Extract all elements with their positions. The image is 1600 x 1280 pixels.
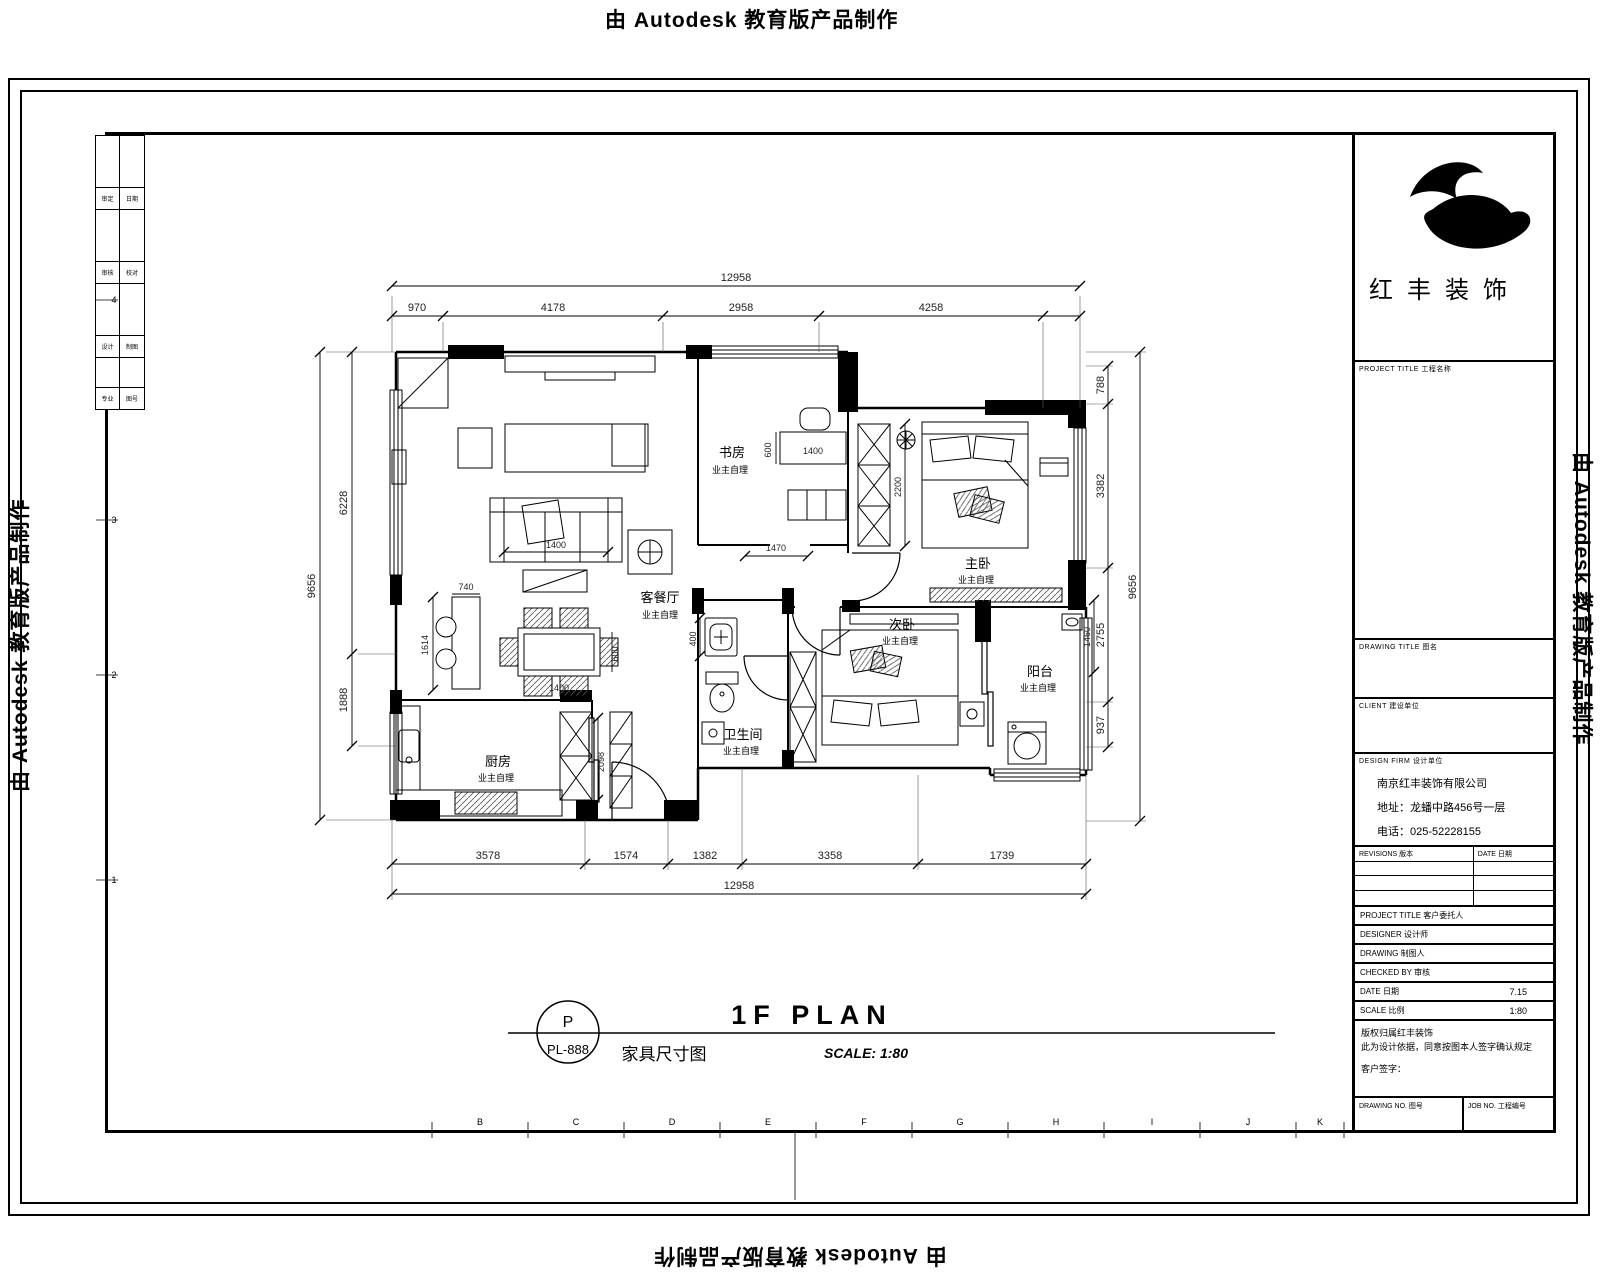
dim: 1460 <box>1082 627 1092 647</box>
dim-kitchen: 2098 <box>596 752 606 772</box>
drawing-stamp: P PL-888 1F PLAN 家具尺寸图 SCALE: 1:80 <box>508 1000 1275 1064</box>
room-note-balcony: 业主自理 <box>1020 682 1056 693</box>
dim: 1888 <box>338 688 350 712</box>
dim-bottom-total: 12958 <box>724 880 755 892</box>
stool <box>1040 458 1068 476</box>
dim-desk: 1400 <box>803 446 823 456</box>
grid-number: 3 <box>111 515 116 525</box>
dim: 1739 <box>990 850 1014 862</box>
grid-references: B C D E F G H I J K 4 3 2 1 <box>96 295 1344 1200</box>
dim: 1574 <box>614 850 638 862</box>
grid-number: 4 <box>111 295 116 305</box>
room-note-study: 业主自理 <box>712 464 748 475</box>
dim: 970 <box>408 302 426 314</box>
armchair <box>458 428 492 468</box>
dim: 4258 <box>919 302 943 314</box>
dim-right-total: 9656 <box>1127 575 1139 599</box>
grid-letter: B <box>477 1117 483 1127</box>
second-wardrobe <box>790 652 816 762</box>
grid-letter: I <box>1151 1117 1154 1127</box>
dim: 6228 <box>338 491 350 515</box>
dimension-texts: 12958 970 4178 2958 4258 3578 1574 1382 … <box>306 272 1139 892</box>
dim-sink: 400 <box>688 631 698 646</box>
room-note-master: 业主自理 <box>958 574 994 585</box>
master-bed <box>922 422 1028 548</box>
dim: 4178 <box>541 302 565 314</box>
bar-counter <box>436 597 480 689</box>
tv <box>545 372 615 380</box>
dim-bed: 2200 <box>893 477 903 497</box>
bathroom-fixtures <box>702 618 738 744</box>
dim: 3578 <box>476 850 500 862</box>
plan-title-cn: 家具尺寸图 <box>622 1045 707 1064</box>
dim-dining-side: 600 <box>610 646 620 661</box>
room-note-second: 业主自理 <box>882 635 918 646</box>
stove <box>455 792 517 814</box>
master-wardrobe <box>858 424 890 546</box>
nightstand <box>960 702 984 726</box>
rug <box>505 424 645 472</box>
grid-letter: F <box>861 1117 867 1127</box>
grid-letter: E <box>765 1117 771 1127</box>
tv-cabinet <box>505 356 655 372</box>
dim: 937 <box>1095 716 1107 734</box>
grid-letter: J <box>1246 1117 1251 1127</box>
dim: 3382 <box>1095 474 1107 498</box>
dim-bar-h: 1614 <box>420 635 430 655</box>
dim-bar-w: 740 <box>458 582 473 592</box>
room-note-kitchen: 业主自理 <box>478 772 514 783</box>
dim-top-total: 12958 <box>721 272 752 284</box>
cad-sheet: { "watermark": { "text": "由 Autodesk 教育版… <box>0 0 1600 1280</box>
grid-number: 1 <box>111 875 116 885</box>
grid-letter: C <box>573 1117 580 1127</box>
stamp-code: PL-888 <box>547 1042 589 1057</box>
room-note-living: 业主自理 <box>642 609 678 620</box>
stamp-letter: P <box>563 1014 574 1031</box>
master-tv-bench <box>930 588 1062 602</box>
floor-plan: 客餐厅 业主自理 书房 业主自理 主卧 业主自理 次卧 业主自理 阳台 业主自理… <box>0 0 1600 1280</box>
second-bed <box>822 630 958 745</box>
lamp-table <box>628 530 672 574</box>
dim-desk-side: 600 <box>763 442 773 457</box>
grid-letter: D <box>669 1117 676 1127</box>
room-label-master: 主卧 <box>965 556 991 571</box>
dim-dining: 1400 <box>549 683 569 693</box>
dim: 2755 <box>1095 623 1107 647</box>
dim: 788 <box>1095 376 1107 394</box>
room-label-living: 客餐厅 <box>640 590 679 605</box>
grid-letter: H <box>1053 1117 1060 1127</box>
dim-corridor: 1470 <box>766 543 786 553</box>
plant <box>897 431 915 449</box>
armchair <box>612 424 648 466</box>
grid-number: 2 <box>111 670 116 680</box>
room-label-second: 次卧 <box>889 617 915 632</box>
room-label-study: 书房 <box>719 445 745 460</box>
dim-left-total: 9656 <box>306 574 318 598</box>
shoe-cabinet <box>610 712 632 808</box>
room-label-balcony: 阳台 <box>1027 664 1053 679</box>
study-sofa <box>788 490 846 520</box>
dim: 2958 <box>729 302 753 314</box>
room-label-bath: 卫生间 <box>723 727 762 742</box>
grid-letter: K <box>1317 1117 1323 1127</box>
dim: 1382 <box>693 850 717 862</box>
dim-sofa: 1400 <box>546 540 566 550</box>
dim: 3358 <box>818 850 842 862</box>
room-note-bath: 业主自理 <box>723 745 759 756</box>
plan-scale: SCALE: 1:80 <box>824 1045 908 1061</box>
grid-letter: G <box>956 1117 963 1127</box>
room-label-kitchen: 厨房 <box>485 754 511 769</box>
plan-title-en: 1F PLAN <box>731 1000 893 1030</box>
